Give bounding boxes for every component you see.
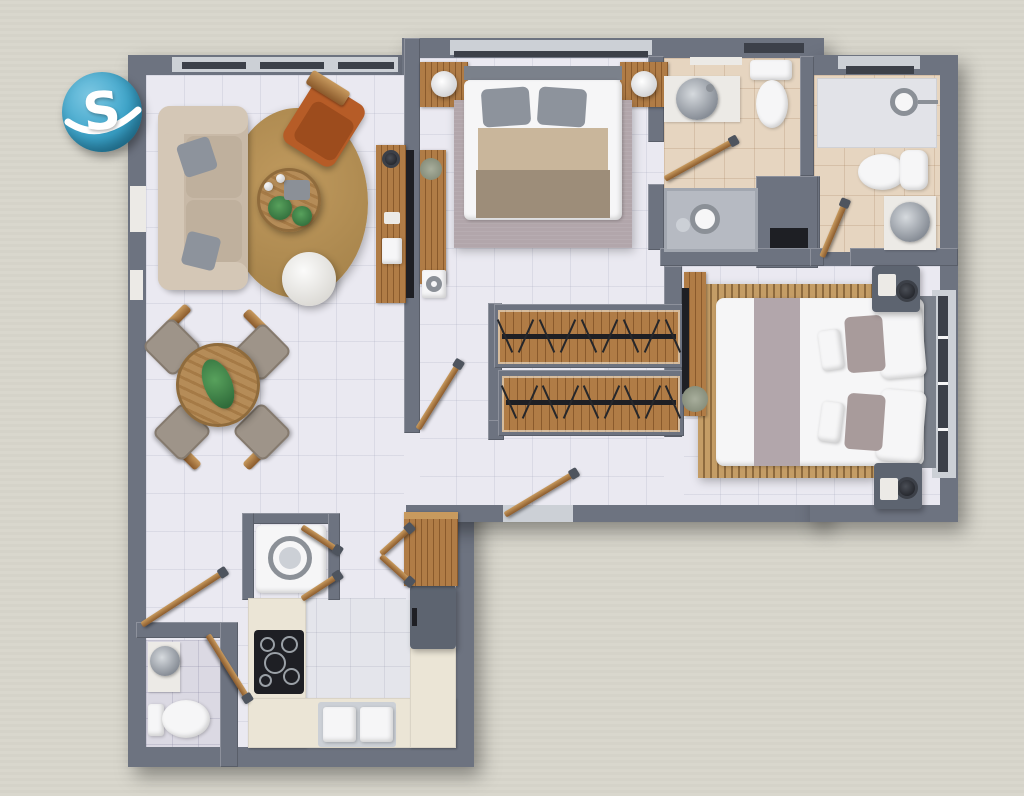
wall-bath1-bath2	[800, 56, 814, 176]
fridge-handle	[412, 608, 417, 626]
hanger-tick	[644, 319, 660, 353]
wall-bath2-master	[850, 248, 958, 266]
bedroom1-pillow-right	[537, 86, 588, 127]
bedroom1-headboard	[464, 66, 622, 80]
burner-4	[259, 674, 272, 687]
bedroom1-shelf-plant	[420, 158, 442, 180]
bedroom1-window-slot	[454, 51, 648, 57]
master-photo-frame-bottom	[880, 478, 898, 500]
bedroom1-moon-ring	[426, 276, 442, 292]
hanger-tick	[539, 319, 555, 353]
kitchen-counter-right	[410, 648, 456, 748]
master-photo-frame-top	[878, 274, 896, 296]
master-lamp-top	[896, 280, 918, 302]
wall-niche-living-1	[130, 186, 146, 232]
closet1-hangers	[504, 318, 674, 354]
coffee-table-plant-2	[292, 206, 312, 226]
powder-basin	[150, 646, 180, 676]
logo-badge: S	[62, 72, 142, 152]
bath2-shower-head	[890, 88, 918, 116]
wall-powder-right	[220, 622, 238, 767]
kitchen-sink-basin-1	[323, 707, 356, 742]
bath2-toilet-tank	[900, 150, 928, 190]
wall-laundry-right	[328, 513, 340, 600]
ottoman	[282, 252, 336, 306]
burner-1	[260, 637, 275, 652]
master-plant	[682, 386, 708, 412]
master-bed-runner	[754, 298, 800, 466]
powder-toilet-bowl	[162, 700, 210, 738]
wall-laundry-left	[242, 513, 254, 600]
bedroom1-pillow-left	[481, 86, 532, 127]
master-window-mullion-3	[938, 428, 948, 431]
hanger-tick	[604, 385, 620, 419]
bath1-shower-drain	[690, 204, 720, 234]
tv-screen	[406, 150, 414, 298]
living-window-slot-3	[338, 62, 394, 69]
console-decor	[384, 212, 400, 224]
console-record-player	[382, 150, 400, 168]
burner-3	[264, 652, 286, 674]
wall-laundry-top	[242, 513, 340, 524]
master-tv	[682, 288, 689, 394]
tv-console	[376, 145, 406, 303]
bedroom1-lamp-right	[631, 71, 657, 97]
sofa-armrest-top	[158, 106, 248, 134]
master-pillow-taupe-1	[844, 315, 886, 374]
bedroom1-throw	[476, 170, 610, 218]
burner-5	[283, 668, 300, 685]
living-window-slot-1	[182, 62, 246, 69]
hanger-tick	[623, 319, 639, 353]
coffee-table-cup-1	[264, 182, 273, 191]
bath1-faucet	[706, 84, 714, 92]
hanger-tick	[581, 319, 597, 353]
pantry-cabinet-top	[404, 512, 458, 519]
hanger-tick	[518, 319, 534, 353]
master-lamp-bottom	[896, 477, 918, 499]
bath2-basin	[890, 202, 930, 242]
hanger-tick	[602, 319, 618, 353]
hanger-tick	[522, 385, 538, 419]
bath2-toilet-bowl	[858, 154, 906, 190]
hanger-tick	[645, 385, 661, 419]
wall-niche-living-2	[130, 270, 143, 300]
master-window-mullion-2	[938, 382, 948, 385]
pantry-cabinet	[404, 512, 458, 586]
floorplan-canvas: S	[0, 0, 1024, 796]
kitchen-sink-basin-2	[360, 707, 393, 742]
bathroom2-window-slot	[846, 66, 914, 74]
suite-doorway-floor	[404, 433, 420, 505]
wall-bedroom1-bath1-lower	[648, 184, 664, 250]
hanger-tick	[542, 385, 558, 419]
bathroom2-shower-floor	[817, 78, 937, 148]
hanger-tick	[624, 385, 640, 419]
hanger-tick	[583, 385, 599, 419]
bathroom1-window-slot	[744, 43, 804, 53]
burner-2	[281, 636, 298, 653]
closet2-hangers	[508, 384, 674, 420]
master-doorway-floor	[664, 437, 684, 505]
washer-door-inner	[279, 547, 301, 569]
master-window-mullion-1	[938, 336, 948, 339]
coffee-table-tray	[284, 180, 310, 200]
bath1-shower-head	[676, 218, 690, 232]
living-window-slot-2	[260, 62, 324, 69]
coffee-table-cup-2	[276, 174, 285, 183]
bath1-toilet-tank	[750, 60, 792, 80]
hanger-tick	[563, 385, 579, 419]
master-pillow-taupe-2	[844, 393, 886, 452]
bedroom1-lamp-left	[431, 71, 457, 97]
hanger-tick	[560, 319, 576, 353]
logo-letter: S	[80, 80, 124, 144]
console-books	[382, 238, 402, 264]
bath2-shower-wand	[918, 100, 938, 104]
bath1-shelf-top	[690, 57, 742, 65]
bath1-toilet-bowl	[756, 80, 788, 128]
